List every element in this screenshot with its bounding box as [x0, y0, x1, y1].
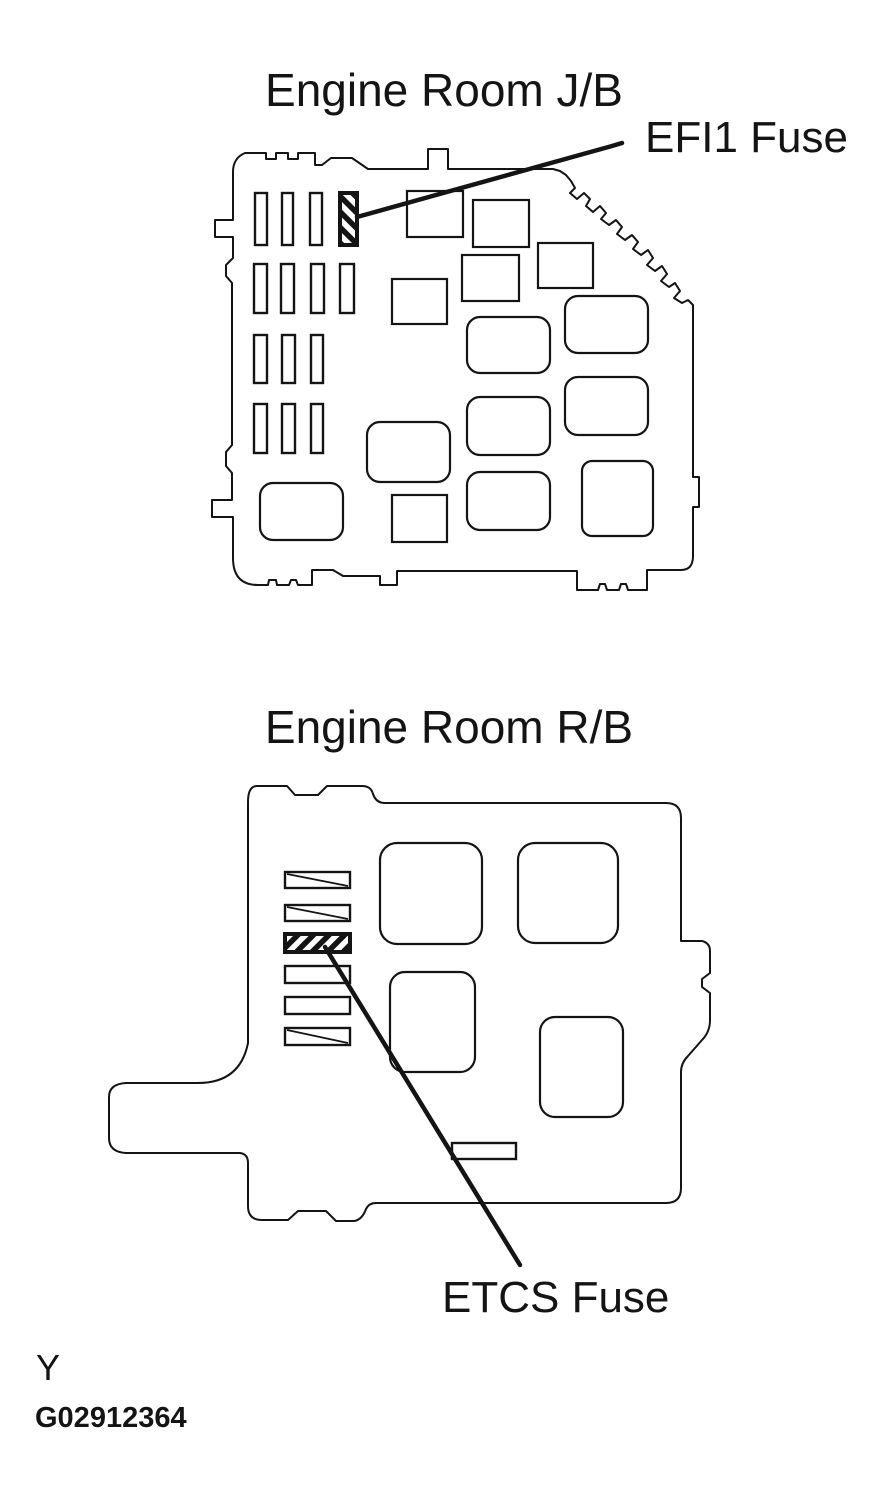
etcs-fuse-highlighted — [285, 934, 350, 952]
relay-slot — [582, 461, 653, 536]
relay-slot — [392, 279, 447, 324]
relay-slot — [467, 397, 550, 455]
connector-slot — [452, 1143, 516, 1159]
jb-title: Engine Room J/B — [265, 64, 623, 116]
page-marker: Y — [36, 1347, 60, 1388]
relay-slot — [390, 972, 475, 1072]
fuse-slot — [281, 264, 294, 313]
fuse-location-diagram: Engine Room J/B — [0, 0, 874, 1500]
efi1-fuse-highlighted — [340, 193, 357, 245]
fuse-location-page: Engine Room J/B — [0, 0, 874, 1500]
relay-slot — [538, 243, 593, 288]
fuse-slot — [282, 193, 293, 245]
relay-slot — [392, 495, 447, 542]
fuse-slot — [310, 193, 322, 245]
relay-slot — [540, 1017, 623, 1117]
relay-slot — [565, 377, 648, 435]
relay-slot — [462, 255, 519, 301]
fuse-slot — [254, 335, 267, 383]
relay-slot — [467, 317, 550, 373]
fuse-slot — [311, 404, 323, 453]
fuse-slot — [285, 997, 350, 1014]
fuse-slot — [255, 193, 267, 245]
relay-slot — [565, 296, 648, 353]
figure-code: G02912364 — [35, 1402, 187, 1434]
relay-slot — [407, 191, 463, 237]
fuse-slot — [340, 264, 354, 313]
relay-slot — [380, 843, 482, 944]
fuse-slot — [311, 264, 324, 313]
relay-slot — [467, 472, 550, 530]
fuse-slot — [254, 404, 267, 453]
relay-slot — [473, 200, 529, 247]
relay-slot — [518, 843, 618, 943]
fuse-slot — [282, 404, 295, 453]
rb-title: Engine Room R/B — [265, 701, 633, 753]
engine-room-jb-diagram: Engine Room J/B — [212, 64, 848, 590]
fuse-slot — [311, 335, 323, 383]
engine-room-rb-diagram: Engine Room R/B ETCS Fuse — [109, 701, 710, 1322]
relay-slot — [260, 483, 343, 540]
efi1-fuse-label: EFI1 Fuse — [645, 113, 848, 162]
fuse-slot — [282, 335, 295, 383]
fuse-slot — [254, 264, 267, 313]
etcs-fuse-label: ETCS Fuse — [442, 1273, 669, 1322]
relay-slot — [367, 422, 450, 482]
